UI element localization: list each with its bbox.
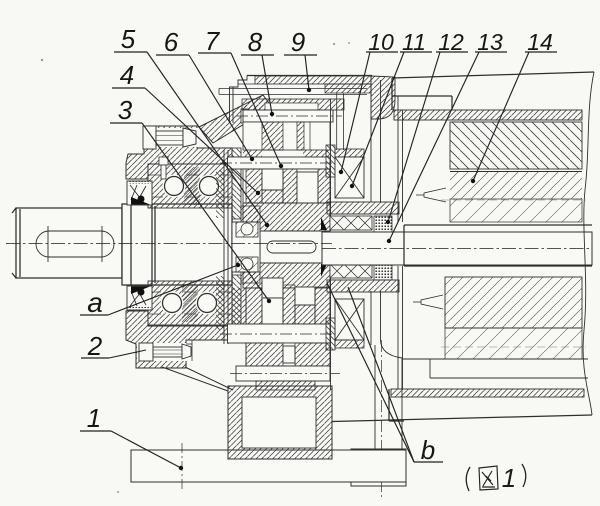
svg-text:1: 1 (502, 463, 516, 493)
svg-text:13: 13 (477, 29, 503, 55)
svg-text:11: 11 (402, 29, 426, 55)
svg-text:14: 14 (527, 29, 553, 55)
svg-text:1: 1 (87, 403, 101, 433)
svg-text:8: 8 (248, 27, 263, 57)
svg-text:12: 12 (438, 29, 464, 55)
svg-text:10: 10 (368, 29, 394, 55)
svg-text:b: b (421, 435, 435, 465)
svg-text:2: 2 (87, 331, 103, 361)
svg-text:4: 4 (120, 60, 134, 90)
svg-text:7: 7 (205, 26, 221, 56)
svg-text:5: 5 (121, 24, 136, 54)
svg-text:a: a (87, 287, 103, 318)
svg-text:9: 9 (291, 27, 305, 57)
svg-text:6: 6 (164, 27, 179, 57)
svg-text:3: 3 (118, 95, 133, 125)
